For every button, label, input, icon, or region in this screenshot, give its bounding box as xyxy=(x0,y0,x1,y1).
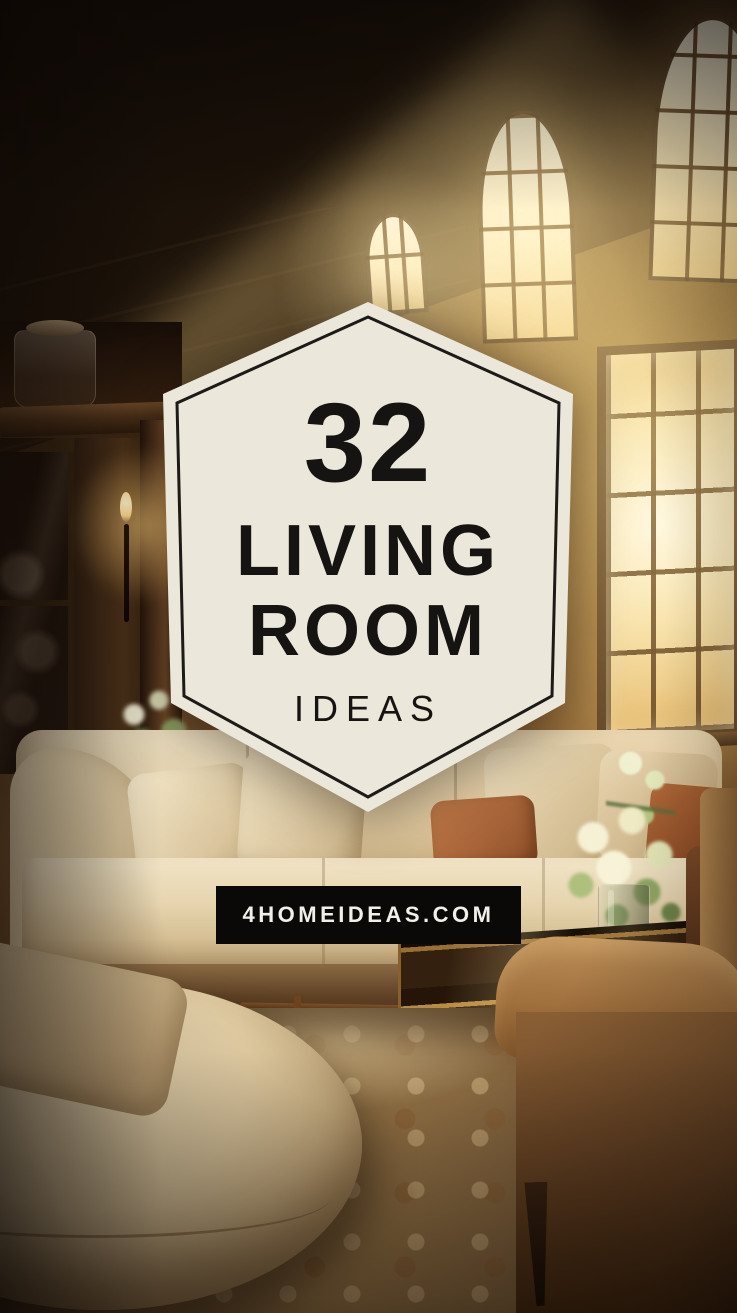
title-line-living: LIVING xyxy=(236,511,500,592)
website-banner: 4HOMEIDEAS.COM xyxy=(216,886,521,944)
website-url-text: 4HOMEIDEAS.COM xyxy=(243,902,495,928)
idea-count: 32 xyxy=(304,390,433,496)
hexagon-title-badge: 32 LIVING ROOM IDEAS xyxy=(163,302,573,812)
title-subtitle-ideas: IDEAS xyxy=(294,688,442,730)
title-line-room: ROOM xyxy=(248,591,488,672)
badge-content: 32 LIVING ROOM IDEAS xyxy=(163,302,573,812)
pinterest-pin-image: 32 LIVING ROOM IDEAS 4HOMEIDEAS.COM xyxy=(0,0,737,1313)
